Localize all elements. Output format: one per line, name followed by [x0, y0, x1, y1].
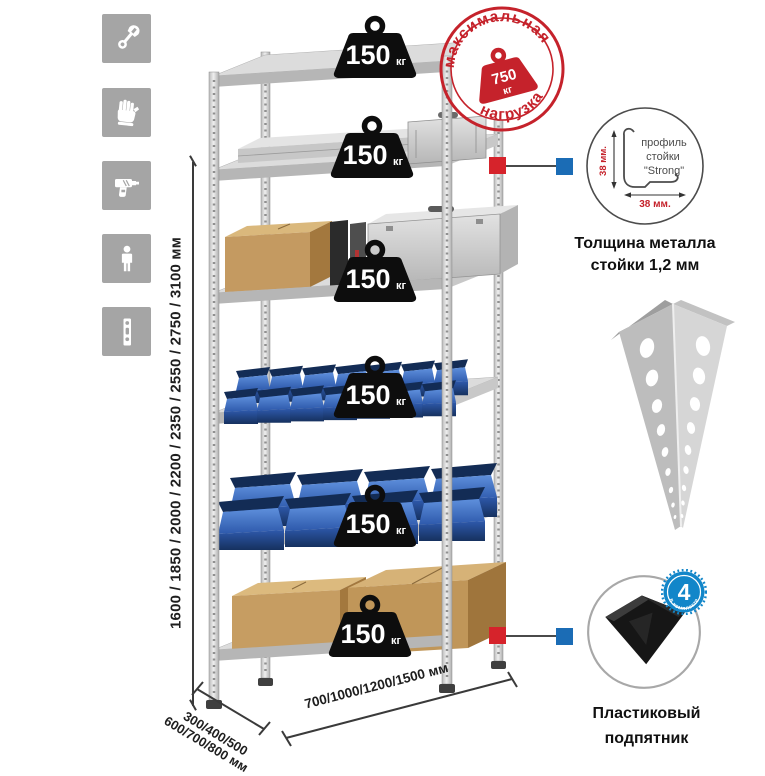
sidebar-tile-gloves — [102, 88, 151, 137]
profile-caption: Толщина металла стойки 1,2 мм — [570, 233, 720, 276]
profile-detail-circle: 38 мм. 38 мм. профиль стойки "Strong" — [585, 106, 705, 226]
sidebar-tile-assembly — [102, 14, 151, 63]
cardboard-box — [225, 221, 332, 292]
weight-badge — [334, 19, 416, 79]
red-marker-top — [489, 157, 506, 174]
perforated-post-icon — [112, 317, 142, 347]
profile-dim-vertical: 38 мм. — [598, 146, 609, 176]
person-icon — [112, 244, 142, 274]
kit-badge-value: 4 — [678, 579, 691, 605]
kit-badge: 4 в комплекте — [661, 569, 707, 615]
max-load-stamp: максимальная нагрузка 750 кг — [436, 3, 568, 135]
foot-caption-line1: Пластиковый — [592, 705, 700, 722]
connector-line-bottom — [506, 635, 556, 637]
profile-dim-horizontal: 38 мм. — [639, 199, 671, 210]
red-marker-bottom — [489, 627, 506, 644]
blue-marker-top — [556, 158, 573, 175]
profile-label-1: профиль — [641, 137, 687, 149]
weight-badge — [331, 119, 413, 179]
blue-marker-bottom — [556, 628, 573, 645]
profile-label-3: "Strong" — [644, 165, 684, 177]
sidebar-tile-post — [102, 307, 151, 356]
wrench-icon — [112, 24, 142, 54]
profile-caption-line1: Толщина металла — [574, 235, 715, 252]
profile-caption-line2: стойки 1,2 мм — [591, 257, 700, 274]
sidebar-tile-drill — [102, 161, 151, 210]
gloves-icon — [112, 98, 142, 128]
profile-label-2: стойки — [646, 151, 680, 163]
corner-post-image — [595, 298, 755, 538]
sidebar-tile-person — [102, 234, 151, 283]
foot-caption: Пластиковый подпятник — [574, 702, 719, 752]
drill-icon — [112, 171, 142, 201]
foot-caption-line2: подпятник — [605, 730, 689, 747]
connector-line-top — [506, 165, 556, 167]
infographic-page: { "page": {"background": "#ffffff"}, "si… — [0, 0, 765, 765]
